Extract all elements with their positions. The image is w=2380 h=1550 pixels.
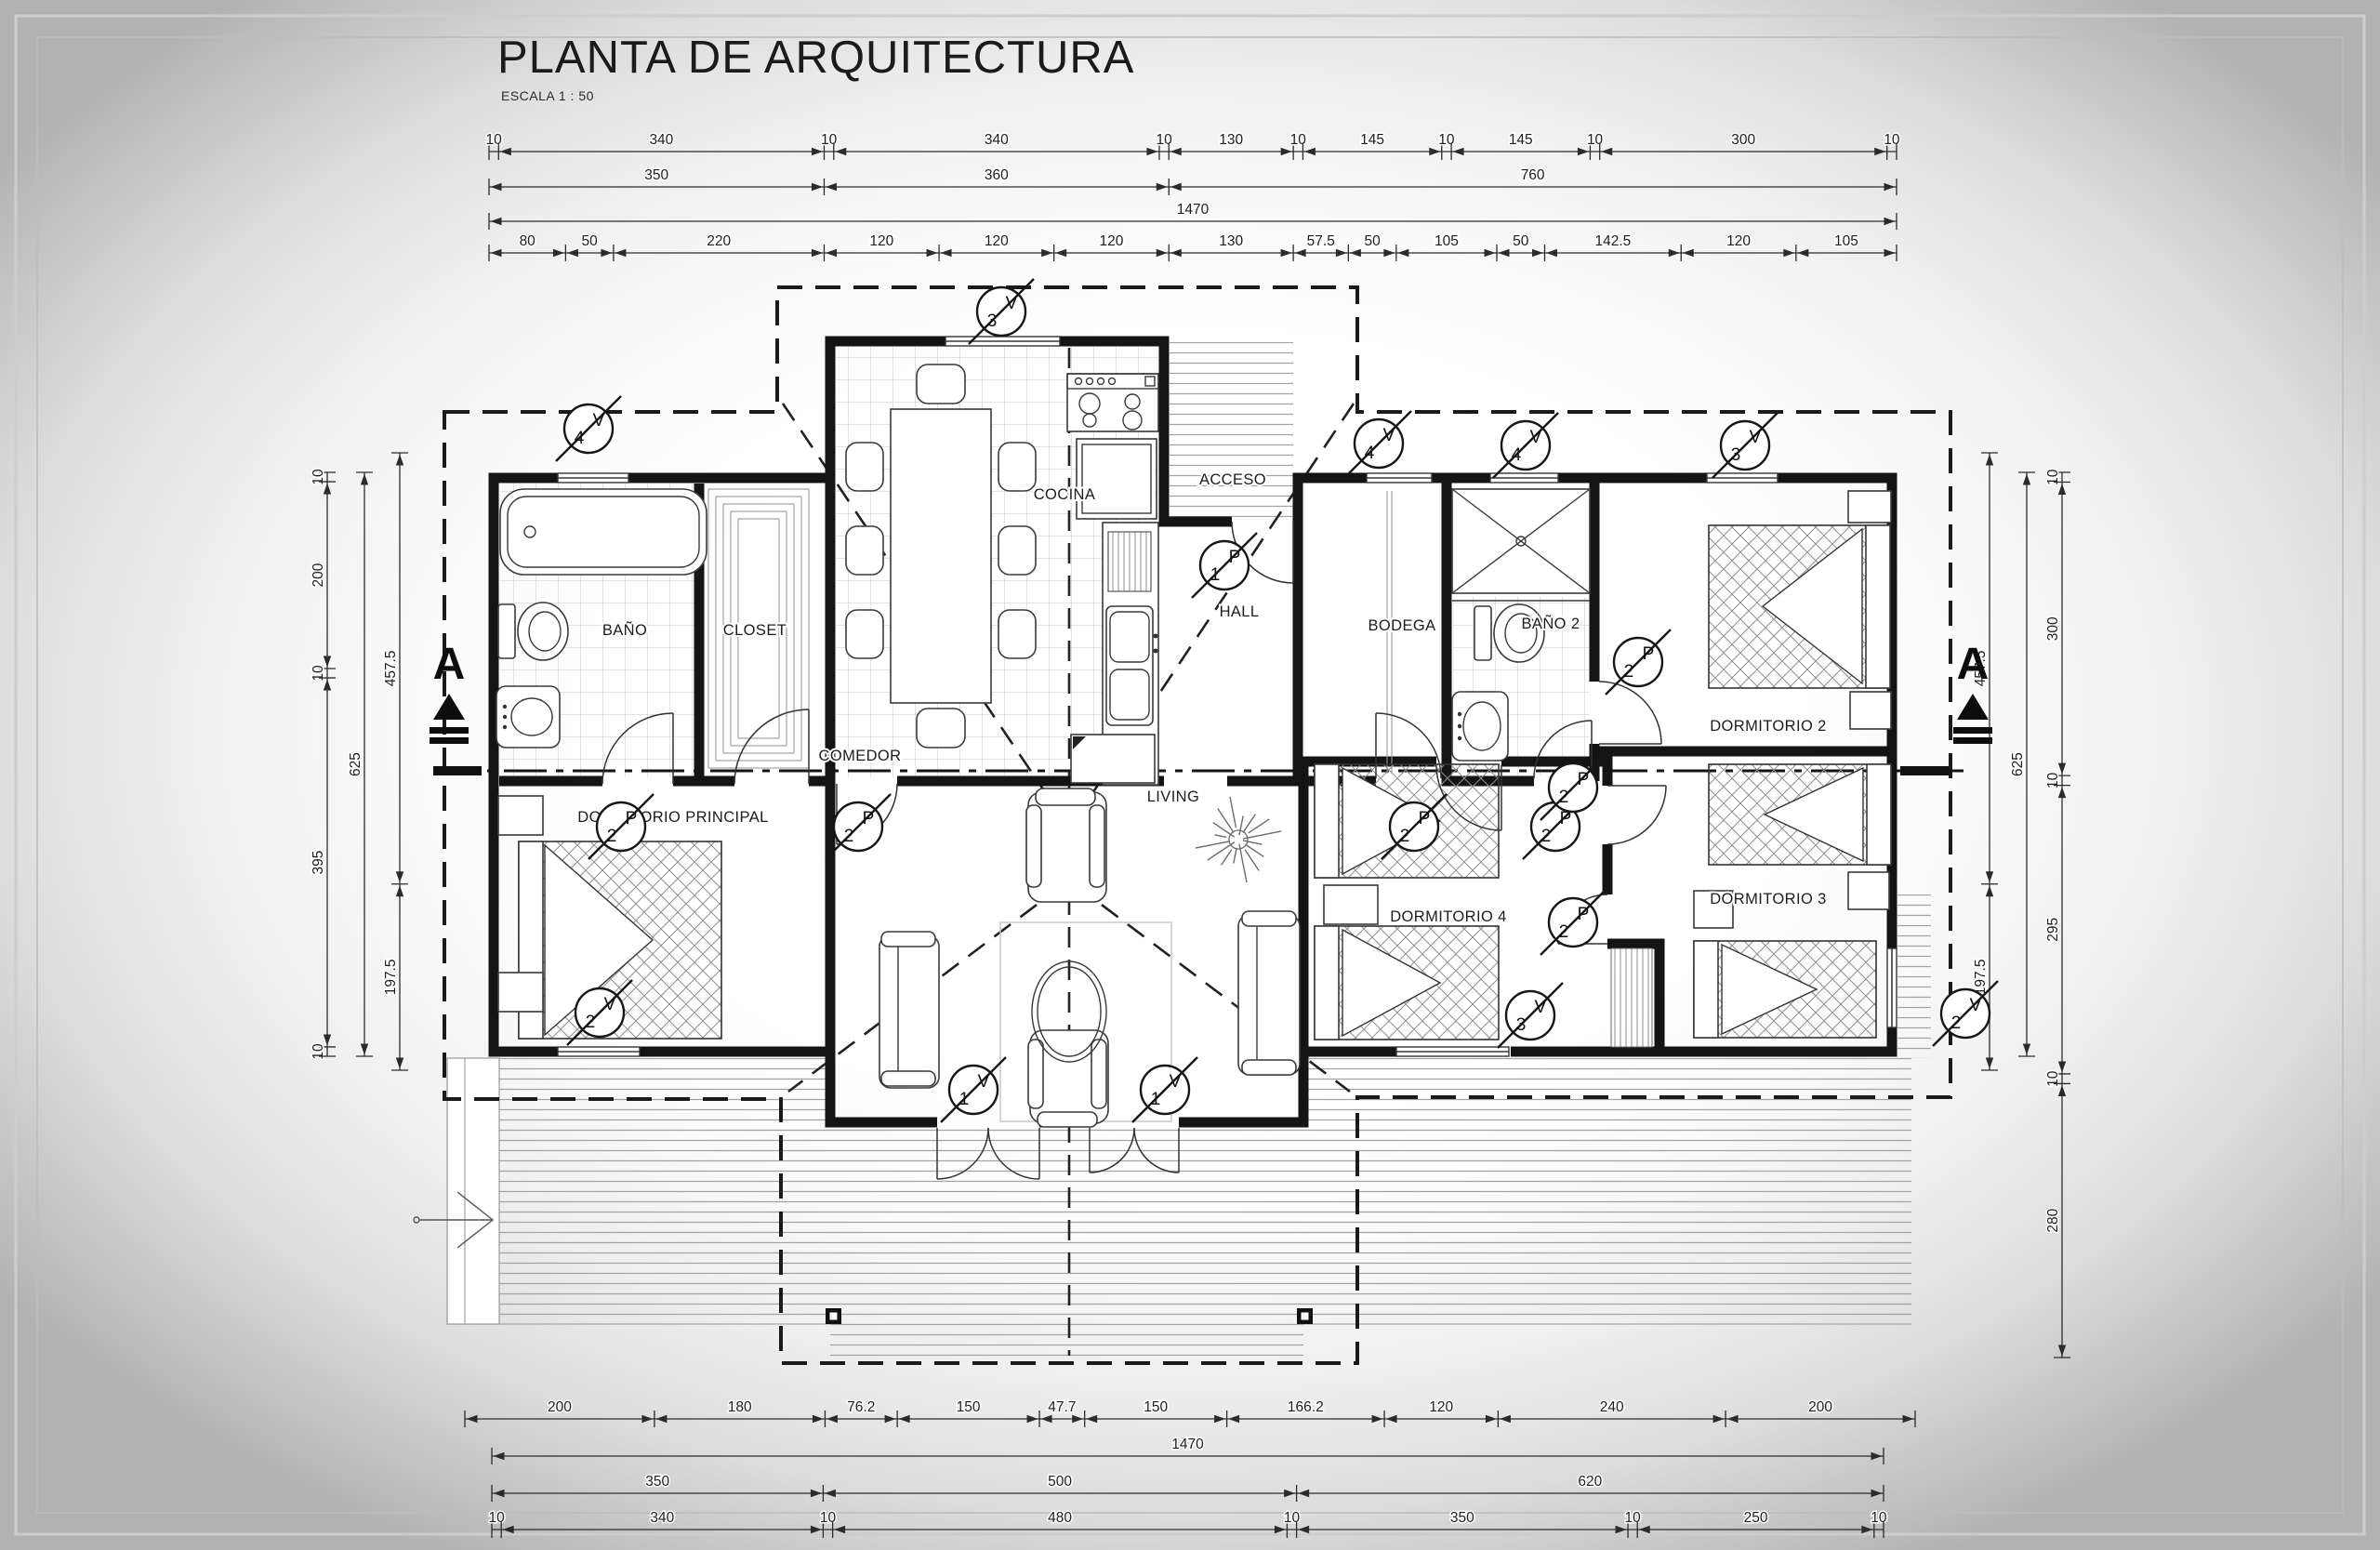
window-dining bbox=[945, 337, 1060, 346]
svg-text:10: 10 bbox=[311, 665, 326, 682]
window-symbol: 4V bbox=[1493, 413, 1558, 478]
svg-text:340: 340 bbox=[649, 132, 673, 148]
stove bbox=[1067, 374, 1158, 431]
room-label: BODEGA bbox=[1368, 617, 1435, 634]
svg-text:10: 10 bbox=[1884, 132, 1900, 148]
dim-chain-horizontal: 1470 bbox=[492, 1437, 1884, 1464]
svg-text:P: P bbox=[1419, 809, 1431, 828]
door bbox=[1607, 786, 1666, 844]
svg-text:10: 10 bbox=[2045, 1070, 2061, 1087]
svg-text:180: 180 bbox=[728, 1399, 752, 1415]
svg-text:10: 10 bbox=[821, 132, 838, 148]
svg-text:142.5: 142.5 bbox=[1594, 233, 1631, 249]
svg-text:V: V bbox=[593, 411, 605, 431]
svg-text:10: 10 bbox=[1156, 132, 1172, 148]
svg-text:P: P bbox=[1229, 548, 1241, 567]
svg-text:10: 10 bbox=[486, 132, 503, 148]
room-label: DORMITORIO 4 bbox=[1390, 908, 1507, 925]
svg-text:120: 120 bbox=[869, 233, 893, 249]
svg-text:10: 10 bbox=[2045, 772, 2061, 788]
window-symbol: 4V bbox=[1346, 411, 1411, 476]
svg-text:105: 105 bbox=[1834, 233, 1858, 249]
plant bbox=[1196, 797, 1281, 882]
dim-chain-vertical: 102001039510 bbox=[311, 469, 336, 1060]
dim-chain-horizontal: 350500620 bbox=[492, 1474, 1884, 1502]
floor-plan-canvas: 1034010340101301014510145103001035036076… bbox=[0, 0, 2380, 1550]
door-symbol: 2P bbox=[1606, 629, 1671, 695]
svg-text:10: 10 bbox=[1438, 132, 1455, 148]
svg-text:150: 150 bbox=[957, 1399, 981, 1415]
dining-table bbox=[891, 409, 991, 703]
kitchen-appliance bbox=[1071, 735, 1155, 783]
window-dorm2 bbox=[1707, 473, 1778, 483]
sofa-right bbox=[1238, 911, 1300, 1075]
svg-text:P: P bbox=[1578, 905, 1590, 924]
svg-text:1: 1 bbox=[1151, 1090, 1161, 1109]
svg-text:625: 625 bbox=[348, 752, 364, 776]
svg-text:350: 350 bbox=[1450, 1510, 1474, 1526]
door-symbol: 2P bbox=[1540, 890, 1606, 955]
svg-text:10: 10 bbox=[488, 1510, 505, 1526]
svg-text:240: 240 bbox=[1600, 1399, 1624, 1415]
svg-text:130: 130 bbox=[1219, 233, 1243, 249]
room-label: COMEDOR bbox=[819, 748, 902, 764]
svg-text:P: P bbox=[1643, 644, 1655, 664]
fridge bbox=[1077, 439, 1157, 519]
svg-text:P: P bbox=[1578, 770, 1590, 789]
window-dorm-principal bbox=[558, 1047, 640, 1056]
room-label: HALL bbox=[1220, 603, 1260, 620]
svg-text:3: 3 bbox=[1516, 1015, 1527, 1035]
svg-text:3: 3 bbox=[1731, 445, 1741, 465]
svg-text:V: V bbox=[1006, 294, 1018, 313]
dim-chain-vertical: 625 bbox=[348, 472, 373, 1056]
svg-text:760: 760 bbox=[1521, 167, 1545, 183]
svg-text:166.2: 166.2 bbox=[1288, 1399, 1324, 1415]
svg-text:10: 10 bbox=[1284, 1510, 1301, 1526]
svg-text:2: 2 bbox=[586, 1013, 596, 1032]
svg-text:47.7: 47.7 bbox=[1048, 1399, 1076, 1415]
svg-text:200: 200 bbox=[1808, 1399, 1832, 1415]
svg-text:V: V bbox=[1970, 996, 1982, 1015]
svg-text:3: 3 bbox=[987, 311, 998, 331]
room-label: CLOSET bbox=[723, 622, 787, 639]
svg-text:105: 105 bbox=[1435, 233, 1459, 249]
svg-text:A: A bbox=[433, 640, 466, 689]
door-symbol: 1P bbox=[1192, 533, 1257, 598]
svg-text:120: 120 bbox=[1100, 233, 1124, 249]
svg-text:120: 120 bbox=[985, 233, 1009, 249]
bath1-sink bbox=[496, 686, 560, 748]
svg-text:V: V bbox=[1530, 428, 1542, 447]
dim-chain-horizontal: 20018076.215047.7150166.2120240200 bbox=[465, 1399, 1915, 1427]
svg-text:2: 2 bbox=[607, 827, 617, 846]
room-label: BAÑO bbox=[602, 620, 647, 639]
svg-text:50: 50 bbox=[1364, 233, 1381, 249]
dim-chain-horizontal: 1470 bbox=[489, 202, 1897, 230]
section-marker: A bbox=[430, 640, 469, 744]
svg-text:50: 50 bbox=[582, 233, 599, 249]
svg-text:4: 4 bbox=[575, 429, 585, 448]
armchair-top bbox=[1026, 788, 1106, 902]
svg-text:197.5: 197.5 bbox=[1973, 959, 1989, 995]
svg-text:76.2: 76.2 bbox=[847, 1399, 875, 1415]
svg-text:500: 500 bbox=[1048, 1474, 1072, 1490]
window-symbol: 3V bbox=[1712, 413, 1778, 478]
svg-text:620: 620 bbox=[1578, 1474, 1602, 1490]
svg-text:2: 2 bbox=[1624, 662, 1634, 682]
dim-chain-horizontal: 805022012012012013057.55010550142.512010… bbox=[489, 233, 1897, 261]
dim-chain-horizontal: 10340103401013010145101451030010 bbox=[486, 132, 1900, 160]
dim-chain-vertical: 457.5197.5 bbox=[1973, 453, 1998, 1070]
svg-text:10: 10 bbox=[311, 1043, 326, 1060]
svg-text:V: V bbox=[1535, 998, 1547, 1017]
bath2-sink bbox=[1452, 692, 1508, 761]
svg-text:280: 280 bbox=[2045, 1208, 2061, 1232]
svg-text:150: 150 bbox=[1144, 1399, 1168, 1415]
svg-text:P: P bbox=[626, 809, 638, 828]
svg-text:250: 250 bbox=[1744, 1510, 1768, 1526]
svg-text:360: 360 bbox=[985, 167, 1009, 183]
svg-text:2: 2 bbox=[1559, 922, 1569, 942]
dim-chain-vertical: 625 bbox=[2010, 472, 2035, 1056]
door bbox=[734, 709, 809, 784]
svg-text:197.5: 197.5 bbox=[383, 959, 399, 995]
toilet2 bbox=[1474, 604, 1544, 662]
svg-text:2: 2 bbox=[844, 827, 854, 846]
svg-text:10: 10 bbox=[1587, 132, 1604, 148]
svg-text:10: 10 bbox=[1290, 132, 1307, 148]
svg-text:200: 200 bbox=[311, 563, 326, 587]
svg-text:1: 1 bbox=[959, 1090, 970, 1109]
svg-text:120: 120 bbox=[1429, 1399, 1453, 1415]
svg-text:200: 200 bbox=[548, 1399, 572, 1415]
svg-text:V: V bbox=[1750, 428, 1762, 447]
shower bbox=[1452, 489, 1590, 601]
svg-text:V: V bbox=[604, 995, 616, 1014]
window-dorm3 bbox=[1887, 948, 1897, 1027]
svg-text:50: 50 bbox=[1513, 233, 1529, 249]
armchair-bottom bbox=[1028, 1030, 1108, 1127]
svg-text:480: 480 bbox=[1048, 1510, 1072, 1526]
window-symbol: 3V bbox=[1498, 983, 1563, 1048]
acceso-deck bbox=[1170, 342, 1293, 517]
section-marker: A bbox=[1953, 640, 1992, 744]
svg-text:P: P bbox=[863, 809, 875, 828]
svg-text:220: 220 bbox=[707, 233, 731, 249]
bathtub bbox=[500, 489, 707, 575]
svg-text:457.5: 457.5 bbox=[383, 650, 399, 686]
room-label: DORMITORIO 2 bbox=[1710, 718, 1827, 735]
deck-right-sliver bbox=[1897, 894, 1931, 1058]
svg-text:300: 300 bbox=[2045, 616, 2061, 641]
svg-text:10: 10 bbox=[311, 469, 326, 485]
room-label: LIVING bbox=[1147, 788, 1200, 805]
svg-text:A: A bbox=[1957, 640, 1990, 689]
svg-text:1470: 1470 bbox=[1171, 1437, 1204, 1452]
svg-text:10: 10 bbox=[1625, 1510, 1642, 1526]
dim-chain-vertical: 103001029510280 bbox=[2045, 469, 2070, 1358]
svg-text:300: 300 bbox=[1731, 132, 1755, 148]
svg-text:57.5: 57.5 bbox=[1307, 233, 1335, 249]
window-bath1 bbox=[558, 473, 628, 483]
svg-text:V: V bbox=[1383, 426, 1395, 445]
svg-text:145: 145 bbox=[1509, 132, 1533, 148]
room-label: COCINA bbox=[1034, 486, 1096, 503]
svg-text:1470: 1470 bbox=[1177, 202, 1210, 218]
window-symbol: 4V bbox=[556, 396, 621, 461]
svg-text:1: 1 bbox=[1210, 565, 1221, 585]
window-bodega bbox=[1367, 473, 1432, 483]
svg-text:4: 4 bbox=[1512, 445, 1522, 465]
sofa-left bbox=[879, 932, 939, 1088]
svg-text:2: 2 bbox=[1951, 1013, 1962, 1033]
room-label: BAÑO 2 bbox=[1522, 614, 1580, 632]
deck-center bbox=[830, 1129, 1303, 1358]
dorm3-closet bbox=[1611, 948, 1652, 1047]
svg-text:10: 10 bbox=[820, 1510, 837, 1526]
window-symbol: 1V bbox=[1132, 1057, 1197, 1122]
window-bath2 bbox=[1490, 473, 1558, 483]
svg-text:625: 625 bbox=[2010, 752, 2026, 776]
svg-text:V: V bbox=[978, 1072, 990, 1092]
svg-text:340: 340 bbox=[985, 132, 1009, 148]
svg-text:2: 2 bbox=[1559, 788, 1569, 807]
window-symbol: 2V bbox=[1933, 981, 1998, 1046]
svg-text:350: 350 bbox=[644, 167, 668, 183]
window-dorm4 bbox=[1396, 1047, 1509, 1056]
svg-text:4: 4 bbox=[1365, 444, 1375, 463]
svg-text:350: 350 bbox=[645, 1474, 669, 1490]
toilet bbox=[498, 603, 568, 660]
svg-text:295: 295 bbox=[2045, 918, 2061, 942]
bed-dorm2 bbox=[1709, 491, 1891, 729]
dish-rack bbox=[1108, 532, 1151, 591]
dim-chain-vertical: 457.5197.5 bbox=[383, 453, 408, 1070]
svg-text:340: 340 bbox=[650, 1510, 674, 1526]
dim-chain-horizontal: 350360760 bbox=[489, 167, 1897, 195]
window-symbol: 1V bbox=[941, 1057, 1006, 1122]
svg-text:80: 80 bbox=[520, 233, 536, 249]
svg-text:395: 395 bbox=[311, 851, 326, 875]
svg-text:145: 145 bbox=[1360, 132, 1384, 148]
room-label: ACCESO bbox=[1199, 471, 1266, 488]
svg-text:10: 10 bbox=[1871, 1510, 1887, 1526]
svg-text:2: 2 bbox=[1541, 827, 1552, 846]
svg-text:V: V bbox=[1170, 1072, 1182, 1092]
room-label: DORMITORIO 3 bbox=[1710, 891, 1827, 907]
svg-text:120: 120 bbox=[1726, 233, 1751, 249]
svg-text:130: 130 bbox=[1219, 132, 1243, 148]
svg-text:2: 2 bbox=[1400, 827, 1410, 846]
svg-text:10: 10 bbox=[2045, 469, 2061, 485]
